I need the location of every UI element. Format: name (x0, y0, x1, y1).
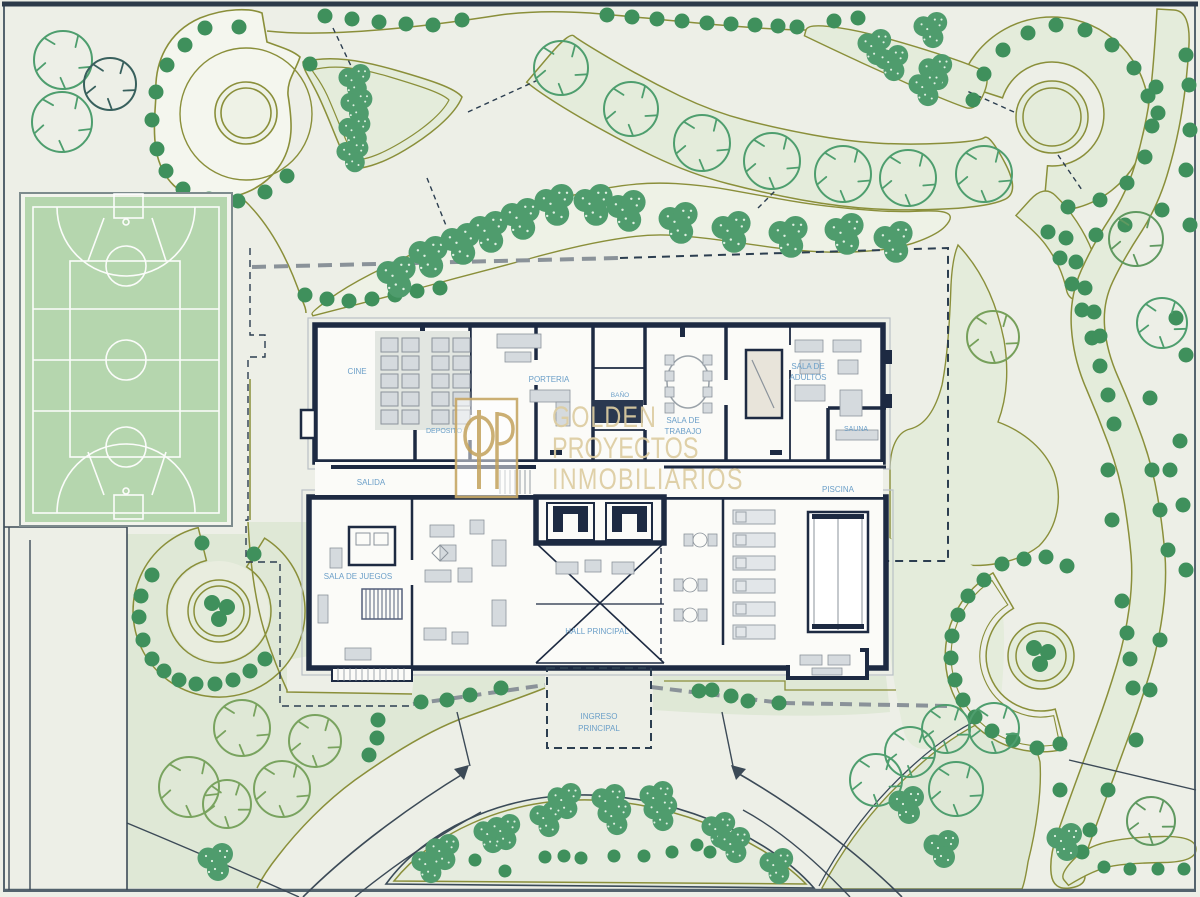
svg-text:INGRESO: INGRESO (581, 712, 618, 721)
svg-text:PISCINA: PISCINA (822, 485, 855, 494)
svg-text:SAUNA: SAUNA (844, 426, 868, 433)
svg-text:PROYECTOS: PROYECTOS (552, 431, 698, 464)
svg-text:SALIDA: SALIDA (357, 478, 386, 487)
svg-text:SALA DE: SALA DE (791, 362, 824, 371)
svg-text:SALA DE JUEGOS: SALA DE JUEGOS (324, 572, 392, 581)
svg-text:SALA DE: SALA DE (666, 416, 699, 425)
svg-text:CINE: CINE (347, 367, 366, 376)
svg-text:PRINCIPAL: PRINCIPAL (578, 724, 620, 733)
svg-text:INMOBILIARIOS: INMOBILIARIOS (552, 462, 744, 495)
svg-text:HALL PRINCIPAL: HALL PRINCIPAL (565, 627, 629, 636)
svg-text:ADULTOS: ADULTOS (789, 373, 826, 382)
svg-text:PORTERIA: PORTERIA (529, 375, 570, 384)
svg-text:BAÑO: BAÑO (611, 390, 629, 399)
svg-text:GOLDEN: GOLDEN (552, 400, 657, 433)
